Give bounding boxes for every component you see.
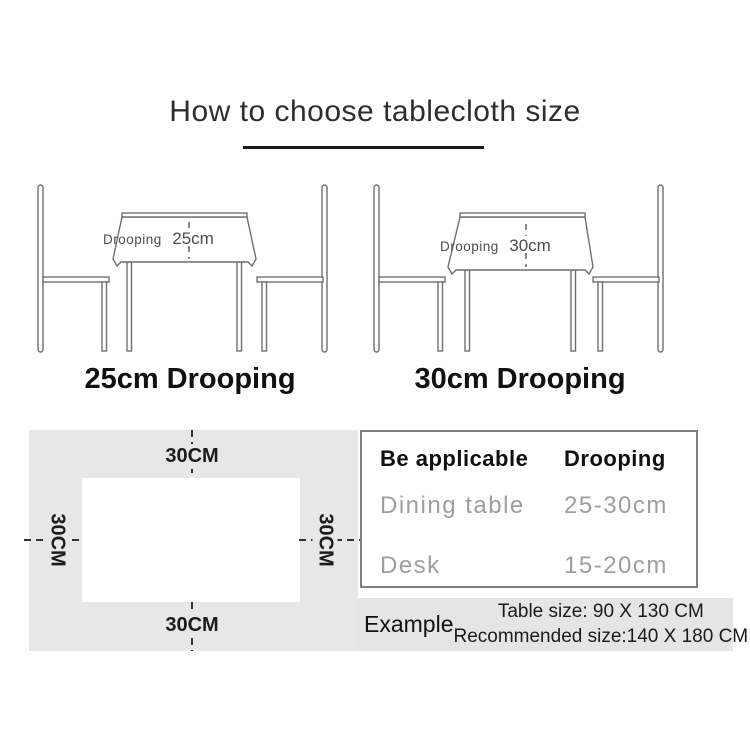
tablecloth-size-diagram: 30CM 30CM 30CM 30CM [29,430,358,651]
table-with-tablecloth-icon [448,213,593,351]
table-top-rect [82,478,300,602]
right-chair-icon [593,185,663,352]
cell-dining-drooping: 25-30cm [564,492,668,520]
drooping-annotation: Drooping 30cm [440,236,551,255]
right-chair-icon [257,185,327,352]
caption-30cm-drooping: 30cm Drooping [355,363,685,396]
header-cell-applicable: Be applicable [380,446,564,472]
cell-dining-table: Dining table [380,492,564,520]
dimension-label-right: 30CM [313,508,338,571]
table-with-chairs-30cm-illustration: Drooping 30cm [361,173,691,355]
cell-desk-drooping: 15-20cm [564,552,668,580]
dimension-label-bottom: 30CM [160,613,223,638]
dimension-label-left: 30CM [45,508,70,571]
cell-desk: Desk [380,552,564,580]
spec-table-row-desk: Desk 15-20cm [380,552,688,580]
example-label: Example [364,611,453,638]
example-recommended-size: Recommended size:140 X 180 CM [453,626,748,648]
example-box: Example Table size: 90 X 130 CM Recommen… [358,598,733,651]
tablecloth-size-guide: How to choose tablecloth size [0,0,750,750]
table-with-chairs-25cm-illustration: Drooping 25cm [25,173,355,355]
caption-25cm-drooping: 25cm Drooping [25,363,355,396]
title-underline [243,146,484,149]
header-cell-drooping: Drooping [564,446,666,472]
drooping-annotation: Drooping 25cm [103,229,214,248]
example-table-size: Table size: 90 X 130 CM [453,601,748,623]
example-lines: Table size: 90 X 130 CM Recommended size… [453,601,748,648]
drooping-spec-table: Be applicable Drooping Dining table 25-3… [360,430,698,588]
left-chair-icon [374,185,445,352]
page-title: How to choose tablecloth size [0,95,750,129]
left-chair-icon [38,185,109,352]
spec-table-header-row: Be applicable Drooping [380,446,688,472]
spec-table-row-dining: Dining table 25-30cm [380,492,688,520]
dimension-label-top: 30CM [160,444,223,469]
